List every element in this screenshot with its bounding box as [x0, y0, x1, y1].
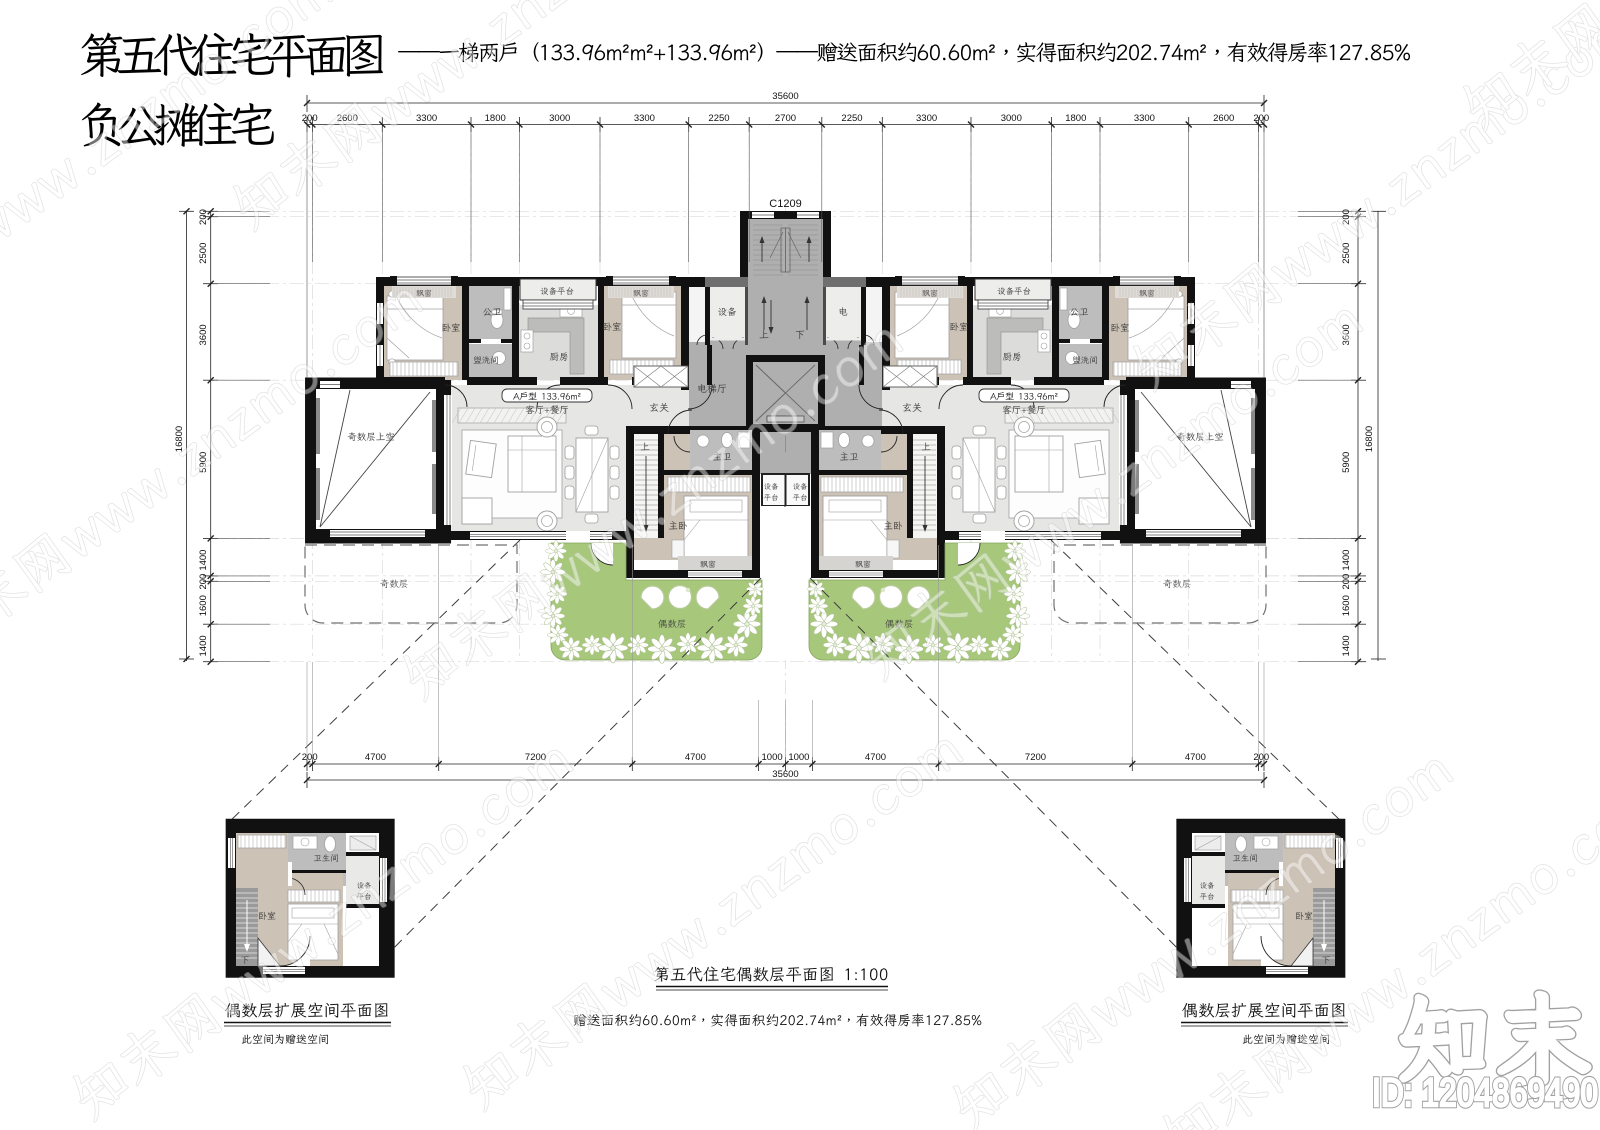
svg-text:3000: 3000: [549, 113, 570, 124]
svg-text:4700: 4700: [1185, 752, 1206, 763]
svg-text:ID: 1204869490: ID: 1204869490: [1372, 1071, 1598, 1115]
svg-text:1000: 1000: [788, 752, 809, 763]
svg-text:200: 200: [302, 752, 318, 763]
svg-text:4700: 4700: [365, 752, 386, 763]
svg-text:3300: 3300: [916, 113, 937, 124]
svg-text:4700: 4700: [685, 752, 706, 763]
svg-text:3300: 3300: [1134, 113, 1155, 124]
svg-text:200: 200: [302, 113, 318, 124]
svg-text:7200: 7200: [1025, 752, 1046, 763]
svg-text:16800: 16800: [1364, 426, 1375, 452]
svg-text:C1209: C1209: [769, 198, 801, 210]
svg-text:1400: 1400: [198, 550, 209, 571]
svg-text:16800: 16800: [174, 426, 185, 452]
svg-text:5900: 5900: [1341, 452, 1352, 473]
svg-text:200: 200: [1253, 113, 1269, 124]
svg-text:35600: 35600: [772, 769, 798, 780]
svg-text:1400: 1400: [198, 635, 209, 656]
svg-text:1400: 1400: [1341, 635, 1352, 656]
svg-text:3300: 3300: [416, 113, 437, 124]
svg-text:2600: 2600: [1213, 113, 1234, 124]
svg-text:2250: 2250: [708, 113, 729, 124]
svg-text:1600: 1600: [1341, 595, 1352, 616]
svg-text:200: 200: [198, 574, 209, 590]
svg-text:200: 200: [1341, 574, 1352, 590]
svg-text:200: 200: [198, 209, 209, 225]
svg-text:1400: 1400: [1341, 550, 1352, 571]
svg-text:1800: 1800: [1065, 113, 1086, 124]
svg-text:200: 200: [1253, 752, 1269, 763]
svg-text:35600: 35600: [772, 91, 798, 102]
svg-text:1800: 1800: [485, 113, 506, 124]
svg-text:3300: 3300: [634, 113, 655, 124]
svg-text:1600: 1600: [198, 595, 209, 616]
svg-text:4700: 4700: [865, 752, 886, 763]
svg-text:2700: 2700: [775, 113, 796, 124]
svg-text:3600: 3600: [198, 324, 209, 345]
svg-text:2500: 2500: [198, 243, 209, 264]
svg-text:2250: 2250: [841, 113, 862, 124]
svg-text:3000: 3000: [1001, 113, 1022, 124]
svg-text:1000: 1000: [762, 752, 783, 763]
